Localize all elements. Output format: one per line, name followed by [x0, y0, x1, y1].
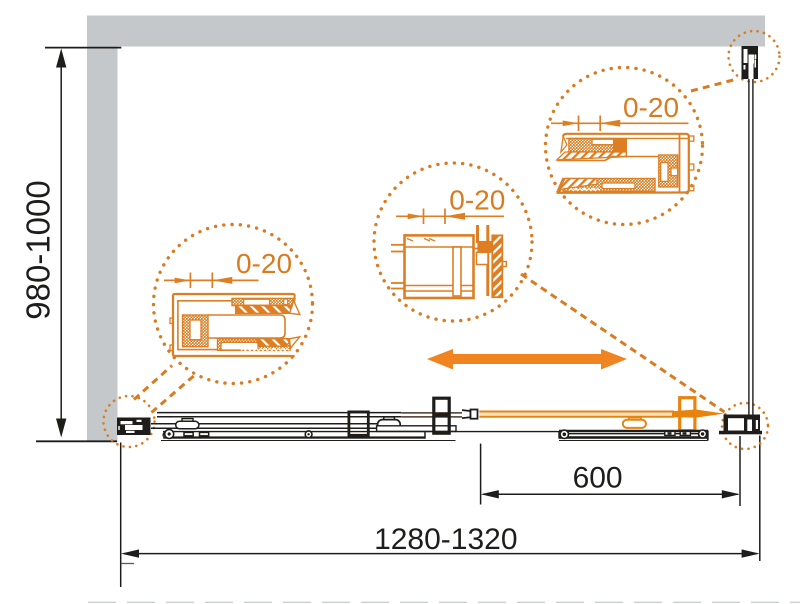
- svg-text:0-20: 0-20: [236, 248, 292, 279]
- svg-text:1280-1320: 1280-1320: [374, 523, 517, 556]
- svg-text:600: 600: [573, 462, 623, 495]
- svg-text:980-1000: 980-1000: [20, 180, 57, 319]
- svg-text:0-20: 0-20: [623, 92, 679, 123]
- svg-text:0-20: 0-20: [449, 185, 505, 216]
